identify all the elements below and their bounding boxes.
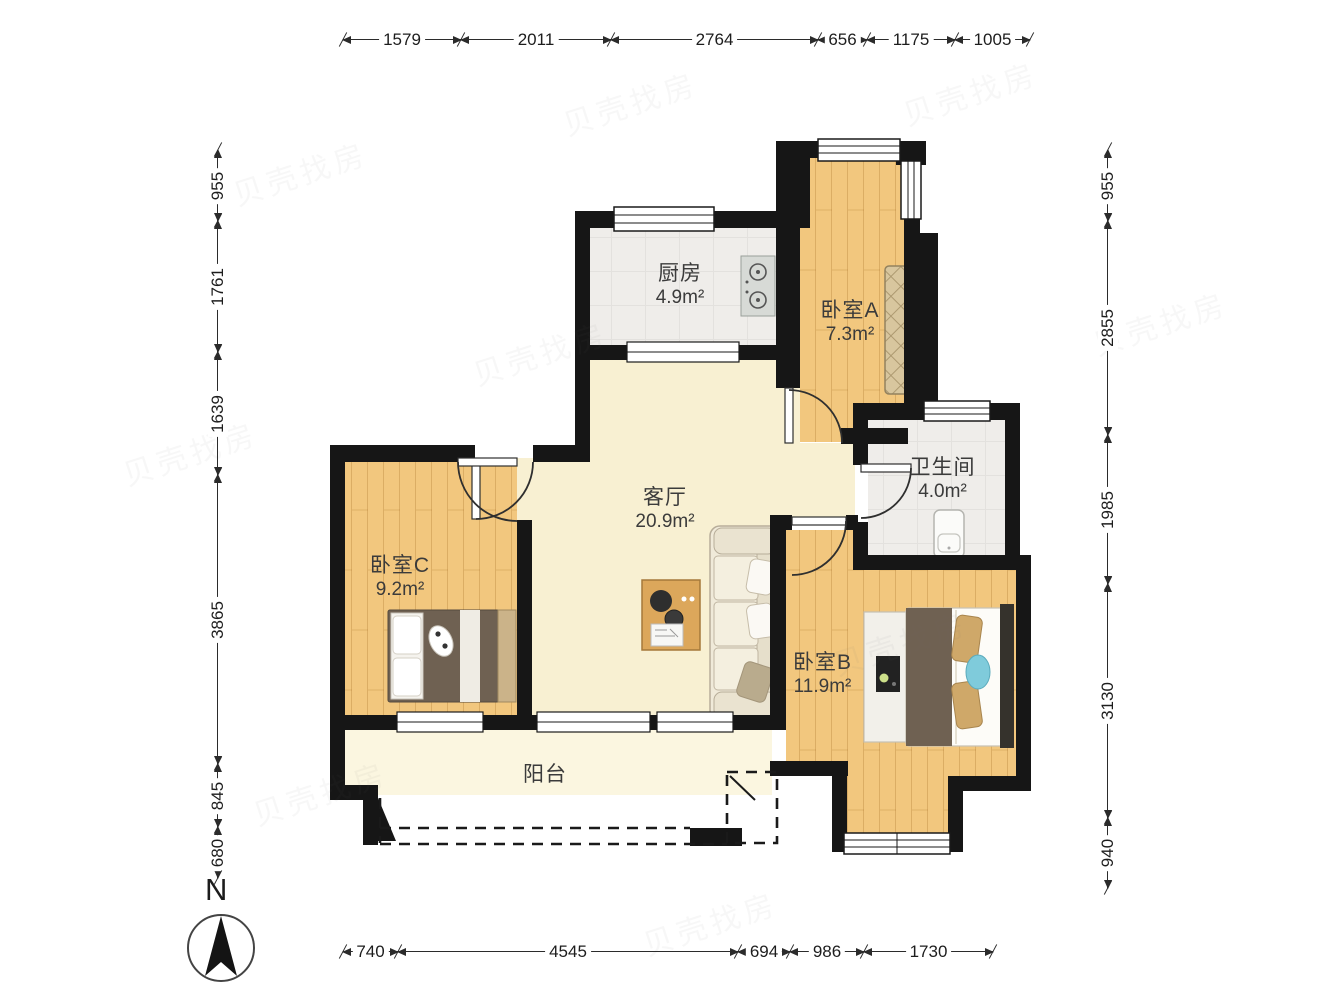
dim-segment: 1175 bbox=[867, 29, 955, 51]
dim-label: 845 bbox=[208, 777, 228, 813]
headboard bbox=[1000, 604, 1014, 748]
dim-segment: 694 bbox=[738, 941, 790, 963]
coffee-table bbox=[642, 580, 700, 650]
wall-segment bbox=[363, 798, 378, 845]
opening-balcony-3 bbox=[657, 712, 733, 732]
dim-label: 656 bbox=[824, 30, 860, 50]
dim-label: 1639 bbox=[208, 391, 228, 437]
opening-balcony-1 bbox=[397, 712, 483, 732]
opening-kitchen bbox=[627, 342, 739, 362]
wall-segment bbox=[1005, 403, 1020, 570]
bedroom-c-bed bbox=[388, 610, 516, 702]
wall-segment bbox=[330, 445, 345, 800]
wall-segment bbox=[776, 141, 810, 228]
wall-segment bbox=[776, 228, 800, 388]
dim-label: 2764 bbox=[692, 30, 738, 50]
dim-label: 955 bbox=[208, 167, 228, 203]
bedroom-b-bed bbox=[864, 604, 1014, 748]
dim-label: 1985 bbox=[1098, 487, 1118, 533]
window-kitchen bbox=[614, 207, 714, 231]
dim-label: 1730 bbox=[906, 942, 952, 962]
north-arrow-icon bbox=[205, 916, 237, 976]
dim-label: 694 bbox=[746, 942, 782, 962]
wall-segment bbox=[770, 515, 792, 530]
wall-segment bbox=[853, 555, 1031, 570]
wall-segment bbox=[904, 216, 920, 408]
stove bbox=[741, 256, 775, 316]
window-bathroom bbox=[924, 401, 990, 421]
dim-segment: 2011 bbox=[461, 29, 611, 51]
tv bbox=[876, 656, 900, 692]
dim-label: 2011 bbox=[514, 30, 559, 50]
dim-label: 2855 bbox=[1098, 305, 1118, 351]
north-compass: N bbox=[185, 872, 275, 990]
dim-label: 1005 bbox=[970, 30, 1016, 50]
opening-balcony-2 bbox=[537, 712, 650, 732]
dim-label: 680 bbox=[208, 834, 228, 870]
wall-segment bbox=[330, 445, 475, 462]
floor-balcony bbox=[344, 728, 772, 795]
dim-label: 955 bbox=[1098, 167, 1118, 203]
wall-segment bbox=[690, 828, 742, 846]
dim-segment: 1985 bbox=[1097, 435, 1119, 584]
wall-segment bbox=[960, 776, 1031, 791]
dim-segment: 656 bbox=[818, 29, 867, 51]
dim-label: 1761 bbox=[208, 264, 228, 310]
compass-icon bbox=[185, 872, 275, 990]
dim-label: 740 bbox=[352, 942, 388, 962]
dim-label: 986 bbox=[809, 942, 845, 962]
wall-segment bbox=[1016, 555, 1031, 791]
dim-segment: 3865 bbox=[207, 475, 229, 764]
wall-segment bbox=[770, 530, 786, 730]
dim-segment: 1639 bbox=[207, 352, 229, 475]
window-bedroom-a-top bbox=[818, 139, 900, 161]
window-bedroom-a-side bbox=[901, 161, 921, 219]
dim-segment: 4545 bbox=[398, 941, 738, 963]
toilet bbox=[934, 510, 964, 558]
floorplan-canvas: 厨房 4.9m² 卧室A 7.3m² 卫生间 4.0m² 客厅 20.9m² 卧… bbox=[0, 0, 1333, 1000]
dim-segment: 1005 bbox=[955, 29, 1030, 51]
window-bedroom-b-bay bbox=[844, 833, 950, 854]
dim-segment: 2764 bbox=[611, 29, 818, 51]
wall-segment bbox=[330, 785, 378, 800]
dim-segment: 955 bbox=[1097, 150, 1119, 221]
floorplan-drawing bbox=[0, 0, 1333, 1000]
wall-segment bbox=[533, 445, 590, 462]
dim-segment: 680 bbox=[207, 827, 229, 878]
dim-segment: 1579 bbox=[343, 29, 461, 51]
dim-segment: 845 bbox=[207, 764, 229, 827]
wall-segment bbox=[846, 515, 858, 530]
dim-segment: 1761 bbox=[207, 221, 229, 352]
dim-label: 940 bbox=[1098, 835, 1118, 871]
dim-label: 1175 bbox=[889, 30, 934, 50]
wall-segment bbox=[918, 233, 938, 408]
wall-segment bbox=[575, 211, 590, 462]
sofa bbox=[710, 526, 780, 720]
dim-label: 3865 bbox=[208, 597, 228, 643]
dim-label: 1579 bbox=[379, 30, 425, 50]
dim-segment: 2855 bbox=[1097, 221, 1119, 435]
dim-segment: 3130 bbox=[1097, 584, 1119, 818]
dim-segment: 740 bbox=[343, 941, 398, 963]
wall-segment bbox=[517, 520, 532, 718]
dim-segment: 1730 bbox=[864, 941, 993, 963]
dim-label: 3130 bbox=[1098, 678, 1118, 724]
dim-segment: 940 bbox=[1097, 818, 1119, 888]
wall-segment bbox=[853, 420, 868, 465]
dim-segment: 986 bbox=[790, 941, 864, 963]
dim-label: 4545 bbox=[545, 942, 591, 962]
dim-segment: 955 bbox=[207, 150, 229, 221]
wall-segment bbox=[841, 428, 908, 444]
